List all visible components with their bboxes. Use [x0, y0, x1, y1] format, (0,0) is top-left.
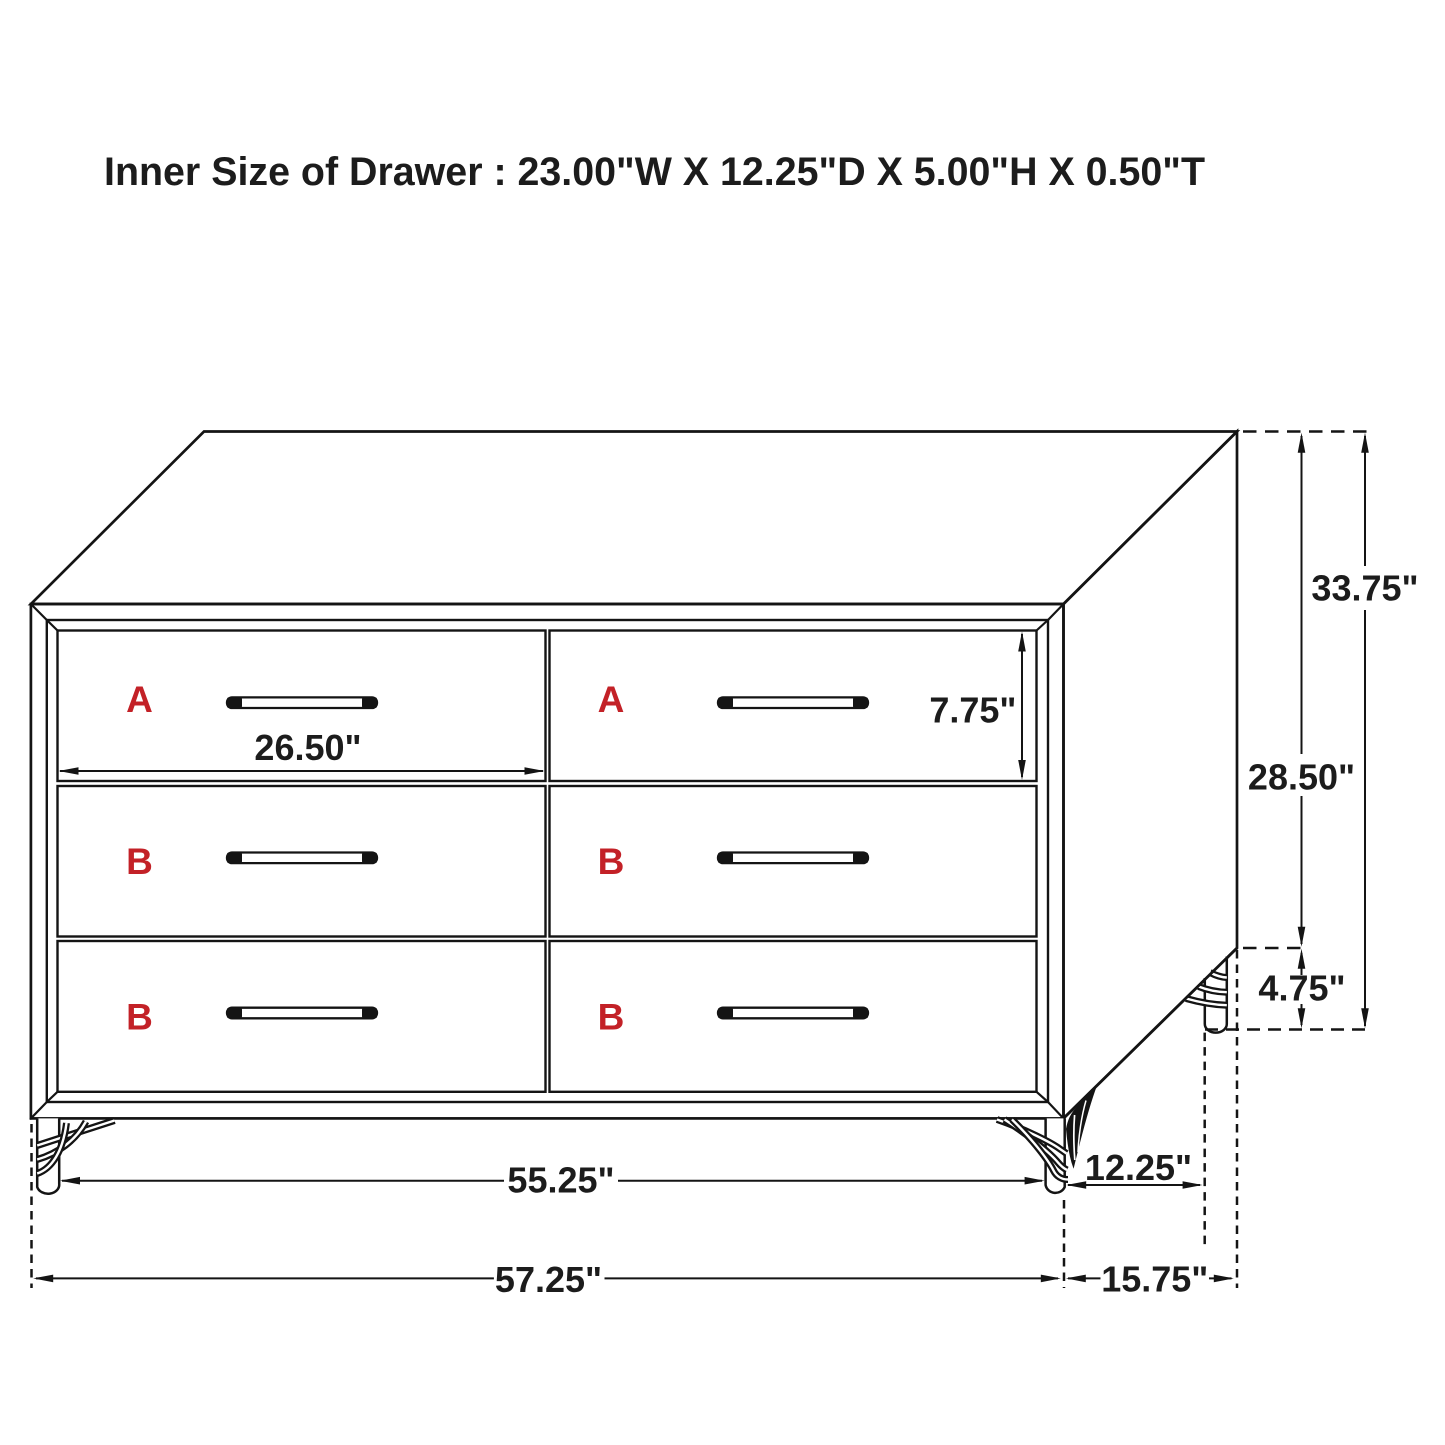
svg-text:7.75": 7.75"	[929, 690, 1016, 731]
svg-text:26.50": 26.50"	[254, 727, 361, 768]
svg-text:33.75": 33.75"	[1311, 567, 1418, 608]
svg-text:12.25": 12.25"	[1085, 1147, 1192, 1188]
svg-text:57.25": 57.25"	[495, 1259, 602, 1300]
svg-text:B: B	[126, 841, 153, 882]
svg-text:A: A	[598, 679, 625, 720]
svg-text:A: A	[126, 679, 153, 720]
svg-text:Inner Size of Drawer : 23.00"W: Inner Size of Drawer : 23.00"W X 12.25"D…	[104, 150, 1205, 194]
svg-text:4.75": 4.75"	[1258, 968, 1345, 1009]
svg-text:28.50": 28.50"	[1248, 756, 1355, 797]
svg-text:55.25": 55.25"	[507, 1160, 614, 1201]
svg-text:B: B	[126, 997, 153, 1038]
svg-text:B: B	[598, 997, 625, 1038]
svg-text:B: B	[598, 841, 625, 882]
svg-text:15.75": 15.75"	[1101, 1259, 1208, 1300]
